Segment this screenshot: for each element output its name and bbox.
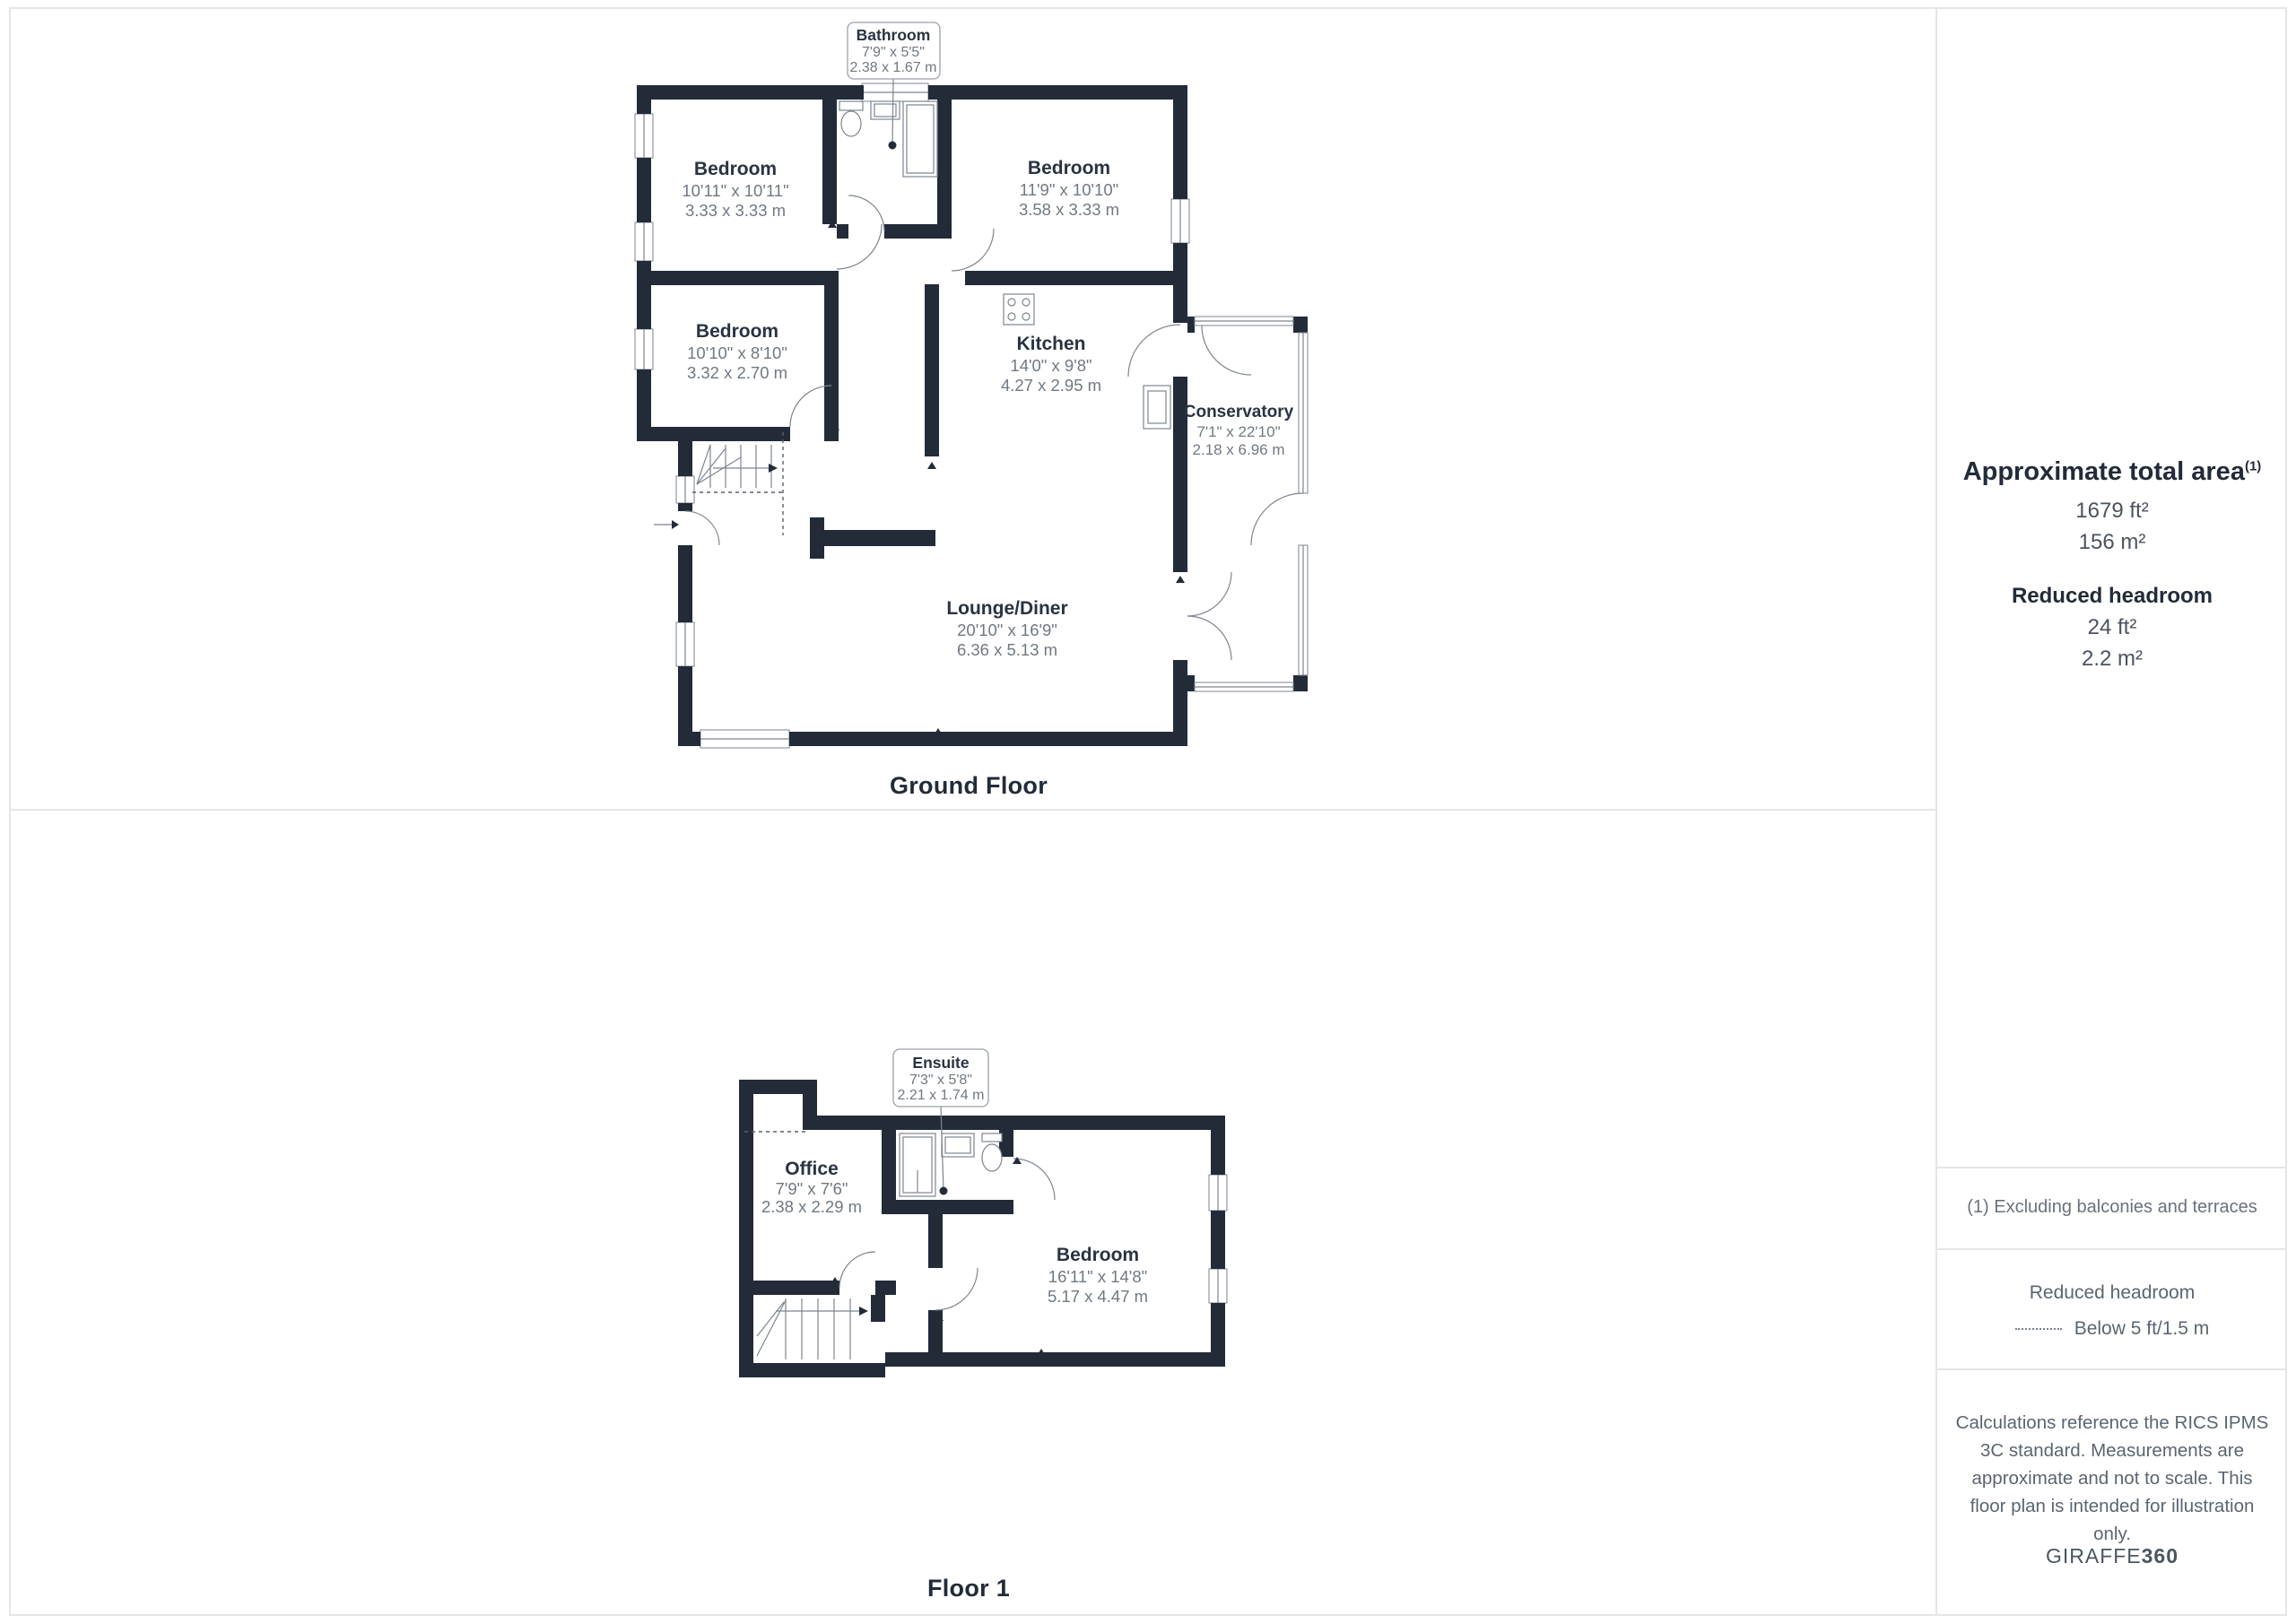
brand-suffix: 360 bbox=[2142, 1544, 2179, 1568]
floor-1-walls bbox=[739, 1080, 1225, 1377]
floor-1-plan: Ensuite 7'3" x 5'8" 2.21 x 1.74 m Office… bbox=[726, 1040, 1247, 1417]
border-bottom bbox=[9, 1614, 2287, 1616]
room-imperial: 7'3" x 5'8" bbox=[909, 1073, 972, 1088]
room-label: Kitchen bbox=[1016, 334, 1085, 354]
toilet-icon bbox=[839, 101, 863, 136]
floor-1-door-arcs bbox=[839, 1159, 1055, 1310]
reduced-headroom-metric: 2.2 m² bbox=[1937, 647, 2287, 672]
approximate-total-area-heading: Approximate total area(1) bbox=[1937, 457, 2287, 487]
room-metric: 2.38 x 2.29 m bbox=[761, 1197, 862, 1216]
ensuite-callout: Ensuite 7'3" x 5'8" 2.21 x 1.74 m bbox=[893, 1049, 988, 1107]
entrance-arrow-icon bbox=[654, 520, 679, 529]
dotted-line-swatch bbox=[2015, 1328, 2062, 1330]
legend-row: Below 5 ft/1.5 m bbox=[1937, 1318, 2287, 1340]
conservatory-glass-walls bbox=[1195, 317, 1308, 691]
room-label: Bedroom bbox=[696, 321, 778, 342]
room-imperial: 7'9" x 5'5" bbox=[862, 45, 925, 60]
room-label-group: Bedroom 10'11" x 10'11" 3.33 x 3.33 m Be… bbox=[682, 158, 1293, 659]
room-metric: 4.27 x 2.95 m bbox=[1001, 376, 1101, 395]
brand-name: GIRAFFE bbox=[2046, 1544, 2142, 1568]
staircase bbox=[757, 1298, 868, 1359]
room-label: Lounge/Diner bbox=[946, 598, 1067, 619]
legend-heading: Reduced headroom bbox=[1937, 1282, 2287, 1304]
shower-icon bbox=[900, 1133, 935, 1196]
sidebar-divider-2 bbox=[1935, 1248, 2287, 1250]
bathroom-callout: Bathroom 7'9" x 5'5" 2.38 x 1.67 m bbox=[848, 22, 940, 79]
room-imperial: 16'11" x 14'8" bbox=[1048, 1267, 1147, 1286]
room-metric: 2.21 x 1.74 m bbox=[898, 1088, 985, 1103]
room-label: Bedroom bbox=[1057, 1245, 1139, 1265]
toilet-icon bbox=[982, 1133, 1002, 1171]
light-point bbox=[889, 142, 897, 150]
room-metric: 3.58 x 3.33 m bbox=[1019, 200, 1119, 219]
reduced-headroom-heading: Reduced headroom bbox=[1937, 584, 2287, 609]
room-label: Office bbox=[785, 1159, 839, 1179]
shower-icon bbox=[903, 101, 937, 177]
room-metric: 2.38 x 1.67 m bbox=[850, 60, 937, 75]
reduced-headroom-imperial: 24 ft² bbox=[1937, 615, 2287, 640]
room-label: Bedroom bbox=[694, 159, 777, 179]
border-right bbox=[2285, 7, 2287, 1616]
room-imperial: 20'10" x 16'9" bbox=[957, 621, 1057, 639]
legend-item-label: Below 5 ft/1.5 m bbox=[2074, 1318, 2210, 1340]
room-metric: 5.17 x 4.47 m bbox=[1048, 1287, 1148, 1306]
sink-icon bbox=[871, 101, 900, 119]
room-metric: 6.36 x 5.13 m bbox=[957, 640, 1057, 659]
ground-floor-title: Ground Floor bbox=[0, 772, 1937, 800]
room-imperial: 7'1" x 22'10" bbox=[1196, 423, 1280, 440]
sink-icon bbox=[942, 1133, 974, 1157]
balconies-footnote: (1) Excluding balconies and terraces bbox=[1937, 1197, 2287, 1218]
total-area-metric: 156 m² bbox=[1937, 530, 2287, 555]
floors-divider bbox=[9, 809, 1935, 811]
room-imperial: 11'9" x 10'10" bbox=[1020, 180, 1118, 199]
kitchen-sink-icon bbox=[1144, 386, 1170, 429]
room-metric: 3.33 x 3.33 m bbox=[685, 201, 786, 220]
room-metric: 2.18 x 6.96 m bbox=[1192, 441, 1284, 458]
sidebar-divider-3 bbox=[1935, 1368, 2287, 1370]
disclaimer-text: Calculations reference the RICS IPMS 3C … bbox=[1954, 1409, 2270, 1548]
floor-plan-page: Bathroom 7'9" x 5'5" 2.38 x 1.67 m Bedro… bbox=[0, 0, 2296, 1624]
ground-floor-plan: Bathroom 7'9" x 5'5" 2.38 x 1.67 m Bedro… bbox=[623, 9, 1332, 771]
room-imperial: 10'11" x 10'11" bbox=[682, 181, 788, 200]
floor-1-title: Floor 1 bbox=[0, 1575, 1937, 1602]
hob-icon bbox=[1004, 294, 1034, 325]
room-label: Ensuite bbox=[912, 1054, 969, 1072]
room-imperial: 14'0" x 9'8" bbox=[1010, 356, 1091, 375]
light-point bbox=[940, 1187, 948, 1195]
border-left bbox=[9, 7, 11, 1616]
room-metric: 3.32 x 2.70 m bbox=[687, 363, 787, 382]
room-imperial: 10'10" x 8'10" bbox=[687, 343, 787, 362]
staircase bbox=[692, 432, 783, 535]
total-area-imperial: 1679 ft² bbox=[1937, 499, 2287, 524]
room-imperial: 7'9" x 7'6" bbox=[776, 1179, 848, 1198]
room-label: Conservatory bbox=[1184, 403, 1294, 421]
area-heading-text: Approximate total area bbox=[1963, 457, 2245, 486]
footnote-marker: (1) bbox=[2245, 458, 2261, 473]
sidebar-divider-vertical bbox=[1935, 7, 1937, 1616]
giraffe360-logo: GIRAFFE360 bbox=[1937, 1544, 2287, 1568]
room-label: Bedroom bbox=[1028, 158, 1110, 178]
room-label: Bathroom bbox=[857, 26, 931, 44]
sidebar-divider-1 bbox=[1935, 1167, 2287, 1168]
